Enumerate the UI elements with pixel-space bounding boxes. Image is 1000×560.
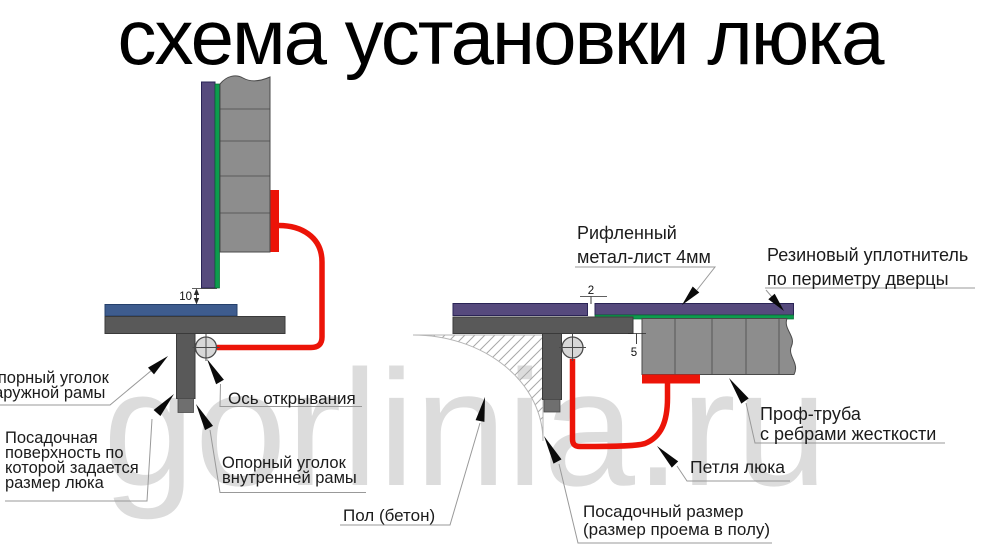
- door-sheet-purple-right: [595, 304, 794, 316]
- label-sheet-line2: метал-лист 4мм: [577, 245, 711, 269]
- label-sheet: Рифленный метал-лист 4мм: [577, 221, 711, 269]
- dimension-10: 10: [179, 289, 217, 305]
- left-view: 10: [105, 76, 322, 413]
- right-view: 2 5: [413, 285, 796, 447]
- label-inner-angle-line2: внутренней рамы: [222, 471, 357, 486]
- dimension-2: 2: [580, 285, 607, 304]
- arrow-seating-surface: [154, 394, 174, 416]
- arrow-floor: [476, 397, 485, 422]
- label-inner-angle: Опорный уголок внутренней рамы: [222, 456, 357, 486]
- label-opening-size-line1: Посадочный размер: [583, 503, 770, 521]
- label-seal-line1: Резиновый уплотнитель: [767, 243, 968, 267]
- page-title: схема установки люка: [0, 0, 1000, 76]
- arrow-sheet: [682, 287, 699, 306]
- frame-stem-right: [543, 334, 562, 400]
- label-outer-angle-line2: наружной рамы: [0, 386, 109, 401]
- lid-seat-blue: [105, 305, 237, 317]
- label-seal-line2: по периметру дверцы: [767, 267, 968, 291]
- label-opening-size-line2: (размер проема в полу): [583, 521, 770, 539]
- arrow-outer-angle: [148, 356, 168, 374]
- frame-sheet-purple-right: [453, 304, 588, 316]
- label-opening-size: Посадочный размер (размер проема в полу): [583, 503, 770, 539]
- dimension-10-value: 10: [179, 291, 192, 303]
- label-floor: Пол (бетон): [343, 506, 435, 526]
- dimension-2-value: 2: [588, 285, 594, 297]
- label-sheet-line1: Рифленный: [577, 221, 711, 245]
- label-tube: Проф-труба с ребрами жесткости: [760, 404, 936, 444]
- label-seating-line4: размер люка: [5, 476, 139, 491]
- arrow-tube: [729, 378, 749, 404]
- outer-frame-bar-right: [453, 317, 633, 334]
- label-opening-axis: Ось открывания: [228, 389, 356, 409]
- arrow-inner-angle: [196, 404, 213, 430]
- hinge-plate-right: [642, 375, 700, 384]
- label-seating-surface: Посадочная поверхность по которой задает…: [5, 431, 139, 491]
- frame-stem-foot-right: [544, 400, 560, 413]
- axis-circle-left: [193, 334, 220, 361]
- arrow-hinge: [657, 446, 678, 468]
- profile-tube-left: [220, 76, 270, 252]
- label-opening-axis-text: Ось открывания: [228, 389, 356, 409]
- outer-frame-bar-left: [105, 317, 285, 334]
- label-hinge: Петля люка: [690, 457, 785, 478]
- label-tube-line1: Проф-труба: [760, 404, 936, 424]
- frame-stem-foot-left: [178, 399, 194, 413]
- hinge-plate-left: [271, 190, 280, 252]
- label-seal: Резиновый уплотнитель по периметру дверц…: [767, 243, 968, 291]
- profile-tube-right: [642, 319, 796, 375]
- door-sheet-purple-left: [202, 82, 216, 288]
- dimension-5-value: 5: [631, 347, 637, 359]
- label-floor-text: Пол (бетон): [343, 506, 435, 526]
- frame-stem-left: [177, 334, 196, 399]
- concrete-floor-section: [413, 335, 543, 441]
- leader-sheet: [575, 267, 715, 290]
- axis-circle-right: [559, 334, 586, 361]
- label-outer-angle: Опорный уголок наружной рамы: [0, 371, 109, 401]
- label-tube-line2: с ребрами жесткости: [760, 424, 936, 444]
- arrow-opening-axis: [207, 359, 224, 384]
- rubber-seal-left: [215, 84, 220, 288]
- label-hinge-text: Петля люка: [690, 457, 785, 478]
- diagram-page: gorlinia.ru схема установки люка: [0, 0, 1000, 560]
- arrow-opening-size: [544, 436, 562, 464]
